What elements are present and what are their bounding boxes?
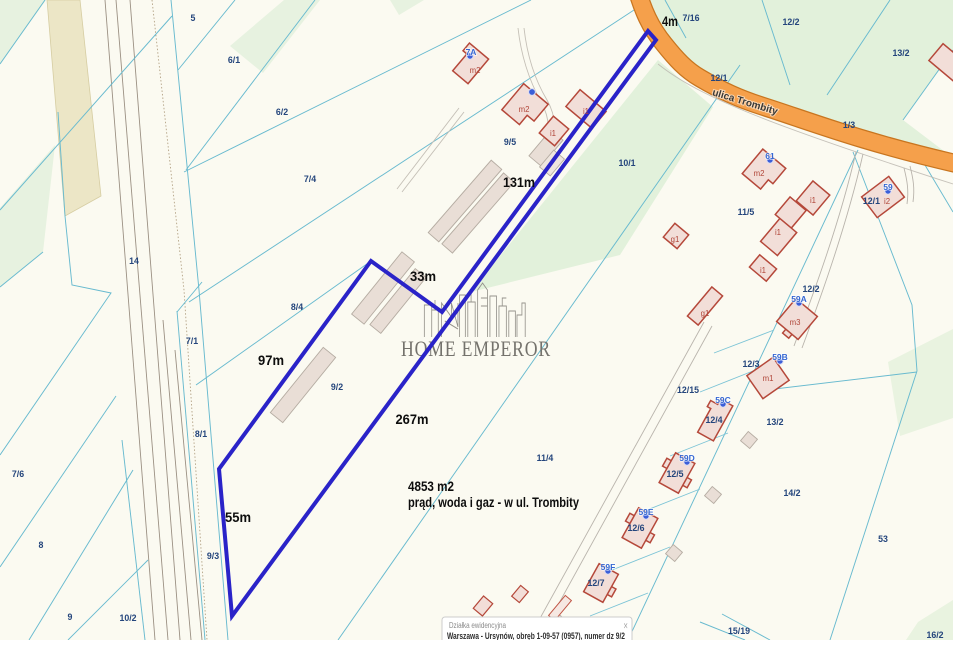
svg-text:59D: 59D: [679, 453, 695, 463]
svg-text:9/2: 9/2: [331, 382, 343, 392]
svg-text:97m: 97m: [258, 353, 284, 368]
svg-text:8/4: 8/4: [291, 302, 303, 312]
svg-text:11/5: 11/5: [738, 207, 755, 217]
svg-text:15/19: 15/19: [728, 626, 750, 636]
svg-text:m2: m2: [519, 105, 530, 114]
svg-text:13/2: 13/2: [766, 417, 783, 427]
svg-text:☓: ☓: [623, 621, 628, 631]
svg-text:m3: m3: [790, 318, 801, 327]
svg-text:55m: 55m: [225, 510, 251, 525]
svg-text:g1: g1: [671, 235, 680, 244]
svg-text:m1: m1: [763, 374, 774, 383]
svg-text:12/6: 12/6: [627, 523, 644, 533]
svg-text:i1: i1: [775, 228, 781, 237]
svg-text:10/1: 10/1: [618, 158, 635, 168]
svg-text:12/7: 12/7: [587, 578, 604, 588]
svg-text:16/2: 16/2: [926, 630, 943, 640]
svg-text:13/2: 13/2: [892, 48, 909, 58]
svg-text:i1: i1: [810, 196, 816, 205]
svg-text:g1: g1: [701, 309, 710, 318]
svg-text:5: 5: [191, 13, 196, 23]
svg-text:12/1: 12/1: [863, 196, 880, 206]
svg-text:59E: 59E: [638, 507, 653, 517]
svg-text:8: 8: [39, 540, 44, 550]
svg-text:12/2: 12/2: [802, 284, 819, 294]
svg-text:m2: m2: [470, 66, 481, 75]
svg-text:7/1: 7/1: [186, 336, 198, 346]
svg-text:267m: 267m: [396, 412, 429, 427]
svg-text:9: 9: [68, 612, 73, 622]
svg-text:7A: 7A: [466, 47, 477, 57]
svg-text:i1: i1: [760, 266, 766, 275]
svg-text:prąd, woda i gaz - w ul. Tromb: prąd, woda i gaz - w ul. Trombity: [408, 494, 579, 510]
svg-text:7/16: 7/16: [682, 13, 699, 23]
svg-text:59: 59: [883, 182, 893, 192]
svg-text:14/2: 14/2: [783, 488, 800, 498]
svg-text:11/4: 11/4: [537, 453, 554, 463]
svg-text:12/2: 12/2: [782, 17, 799, 27]
svg-text:59B: 59B: [772, 352, 788, 362]
svg-text:131m: 131m: [503, 175, 535, 190]
svg-text:4853 m2: 4853 m2: [408, 478, 454, 494]
svg-text:7/6: 7/6: [12, 469, 24, 479]
svg-text:12/3: 12/3: [742, 359, 759, 369]
svg-text:14: 14: [129, 256, 139, 266]
svg-text:i2: i2: [884, 197, 890, 206]
svg-text:33m: 33m: [410, 269, 436, 284]
svg-text:1/3: 1/3: [843, 120, 855, 130]
svg-text:6/2: 6/2: [276, 107, 288, 117]
svg-text:53: 53: [878, 534, 888, 544]
svg-text:Działka ewidencyjna: Działka ewidencyjna: [449, 621, 506, 630]
svg-text:4m: 4m: [662, 14, 678, 29]
svg-text:9/5: 9/5: [504, 137, 516, 147]
svg-text:8/1: 8/1: [195, 429, 207, 439]
svg-text:12/15: 12/15: [677, 385, 699, 395]
svg-text:59C: 59C: [715, 395, 731, 405]
svg-text:10/2: 10/2: [119, 613, 136, 623]
svg-text:12/5: 12/5: [666, 469, 683, 479]
svg-text:59A: 59A: [791, 294, 807, 304]
svg-text:12/4: 12/4: [705, 415, 722, 425]
svg-text:Warszawa - Ursynów, obręb 1-09: Warszawa - Ursynów, obręb 1-09-57 (0957)…: [447, 631, 625, 640]
svg-text:9/3: 9/3: [207, 551, 219, 561]
svg-text:59F: 59F: [601, 562, 616, 572]
svg-text:6/1: 6/1: [228, 55, 240, 65]
svg-text:7/4: 7/4: [304, 174, 316, 184]
svg-text:i1: i1: [550, 129, 556, 138]
svg-text:m2: m2: [754, 169, 765, 178]
svg-text:12/1: 12/1: [710, 73, 727, 83]
svg-text:61: 61: [765, 151, 775, 161]
svg-text:i1: i1: [583, 107, 589, 116]
